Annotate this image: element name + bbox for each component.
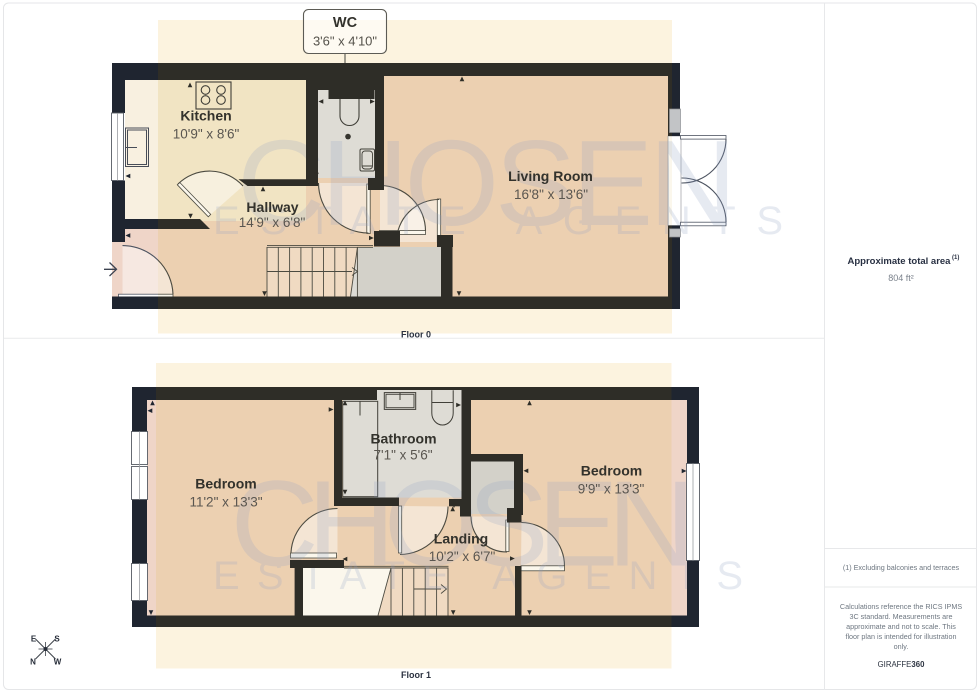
svg-text:GIRAFFE360: GIRAFFE360: [878, 660, 925, 669]
svg-text:Bathroom: Bathroom: [370, 431, 436, 447]
svg-text:(1) Excluding balconies and te: (1) Excluding balconies and terraces: [843, 563, 960, 572]
svg-text:10'9" x 8'6": 10'9" x 8'6": [173, 126, 240, 141]
svg-text:Bedroom: Bedroom: [195, 475, 256, 491]
svg-text:804 ft²: 804 ft²: [888, 273, 914, 283]
svg-text:Living Room: Living Room: [508, 168, 593, 184]
svg-text:W: W: [54, 658, 62, 667]
svg-text:11'2" x 13'3": 11'2" x 13'3": [189, 494, 262, 509]
svg-text:14'9" x 6'8": 14'9" x 6'8": [239, 215, 306, 230]
svg-text:Bedroom: Bedroom: [581, 463, 642, 479]
svg-text:Floor 0: Floor 0: [401, 330, 431, 340]
svg-text:S: S: [54, 635, 60, 644]
svg-text:(1): (1): [952, 255, 959, 261]
svg-text:Kitchen: Kitchen: [180, 108, 231, 124]
svg-text:Approximate total area: Approximate total area: [848, 256, 952, 267]
svg-text:WC: WC: [333, 15, 358, 31]
svg-text:9'9" x 13'3": 9'9" x 13'3": [578, 481, 645, 496]
svg-text:3'6" x 4'10": 3'6" x 4'10": [313, 34, 377, 49]
svg-text:3C standard. Measurements are: 3C standard. Measurements are: [849, 612, 952, 621]
svg-text:approximate and not to scale.: approximate and not to scale. This: [846, 622, 956, 631]
svg-text:Hallway: Hallway: [246, 199, 298, 215]
svg-text:Landing: Landing: [434, 531, 488, 547]
svg-text:Floor 1: Floor 1: [401, 670, 431, 680]
svg-text:10'2" x 6'7": 10'2" x 6'7": [429, 549, 496, 564]
svg-text:E: E: [31, 635, 37, 644]
svg-text:only.: only.: [894, 642, 909, 651]
svg-text:floor plan is intended for ill: floor plan is intended for illustration: [845, 632, 956, 641]
svg-text:16'8" x 13'6": 16'8" x 13'6": [514, 187, 588, 202]
svg-text:Calculations reference the RIC: Calculations reference the RICS IPMS: [840, 602, 962, 611]
svg-text:7'1" x 5'6": 7'1" x 5'6": [373, 448, 432, 463]
svg-text:N: N: [30, 658, 36, 667]
